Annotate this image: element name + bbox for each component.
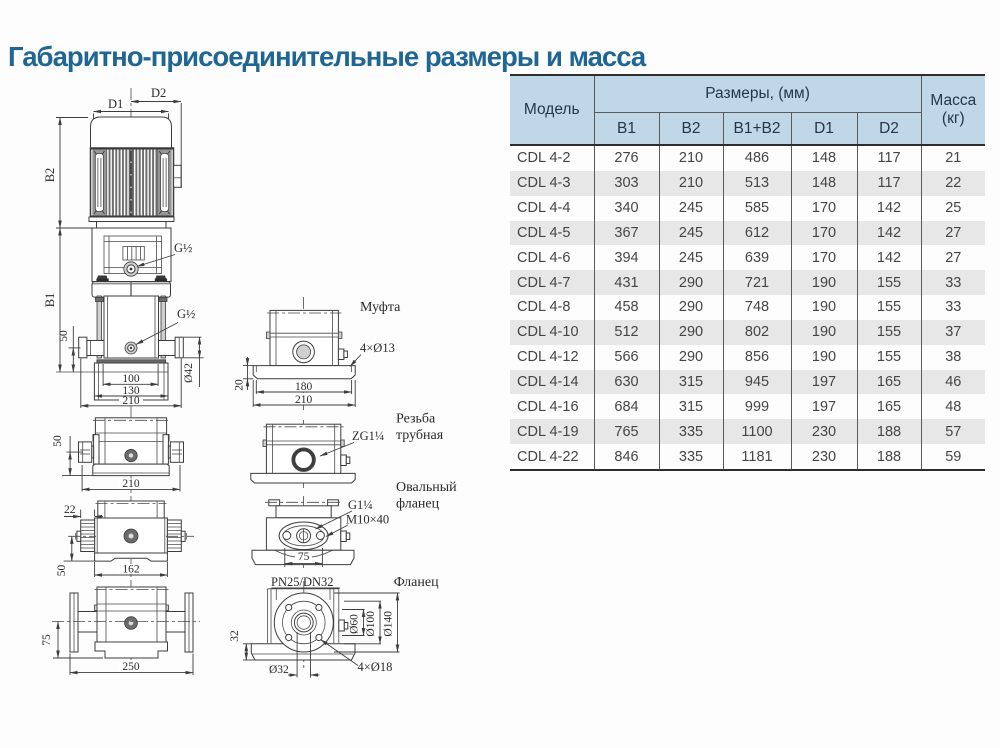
svg-text:D2: D2 bbox=[151, 86, 166, 100]
svg-text:M10×40: M10×40 bbox=[346, 513, 389, 527]
svg-text:Фланец: Фланец bbox=[394, 575, 439, 590]
svg-text:PN25/DN32: PN25/DN32 bbox=[271, 575, 334, 589]
svg-text:Резьба: Резьба bbox=[396, 412, 436, 427]
svg-text:50: 50 bbox=[52, 435, 64, 447]
svg-text:G1¼: G1¼ bbox=[348, 498, 373, 512]
svg-text:Ø100: Ø100 bbox=[365, 611, 377, 637]
svg-text:ZG1¼: ZG1¼ bbox=[352, 429, 384, 443]
svg-text:трубная: трубная bbox=[396, 428, 444, 443]
svg-text:D1: D1 bbox=[108, 97, 123, 111]
svg-text:4×Ø13: 4×Ø13 bbox=[360, 341, 395, 355]
svg-text:Муфта: Муфта bbox=[360, 300, 401, 315]
svg-text:B2: B2 bbox=[43, 168, 57, 183]
svg-text:Ø60: Ø60 bbox=[348, 614, 360, 634]
svg-text:180: 180 bbox=[295, 381, 313, 393]
svg-text:Овальный: Овальный bbox=[396, 480, 457, 495]
svg-text:50: 50 bbox=[56, 565, 68, 577]
svg-text:50: 50 bbox=[58, 330, 70, 342]
svg-text:75: 75 bbox=[298, 551, 310, 563]
svg-text:G½: G½ bbox=[177, 307, 195, 321]
svg-text:22: 22 bbox=[64, 504, 76, 516]
svg-text:210: 210 bbox=[122, 395, 140, 407]
svg-text:162: 162 bbox=[122, 564, 140, 576]
svg-text:75: 75 bbox=[41, 634, 53, 646]
svg-text:G½: G½ bbox=[174, 241, 192, 255]
svg-text:Ø42: Ø42 bbox=[183, 363, 195, 383]
svg-text:Ø32: Ø32 bbox=[269, 664, 289, 676]
svg-text:4×Ø18: 4×Ø18 bbox=[358, 660, 393, 674]
svg-text:фланец: фланец bbox=[396, 497, 440, 512]
svg-text:B1: B1 bbox=[43, 293, 57, 308]
svg-text:210: 210 bbox=[122, 478, 140, 490]
svg-text:100: 100 bbox=[122, 373, 140, 385]
svg-text:250: 250 bbox=[122, 661, 140, 673]
svg-text:32: 32 bbox=[229, 630, 241, 642]
svg-text:20: 20 bbox=[234, 379, 246, 391]
svg-text:Ø140: Ø140 bbox=[382, 611, 394, 637]
svg-text:210: 210 bbox=[295, 394, 313, 406]
